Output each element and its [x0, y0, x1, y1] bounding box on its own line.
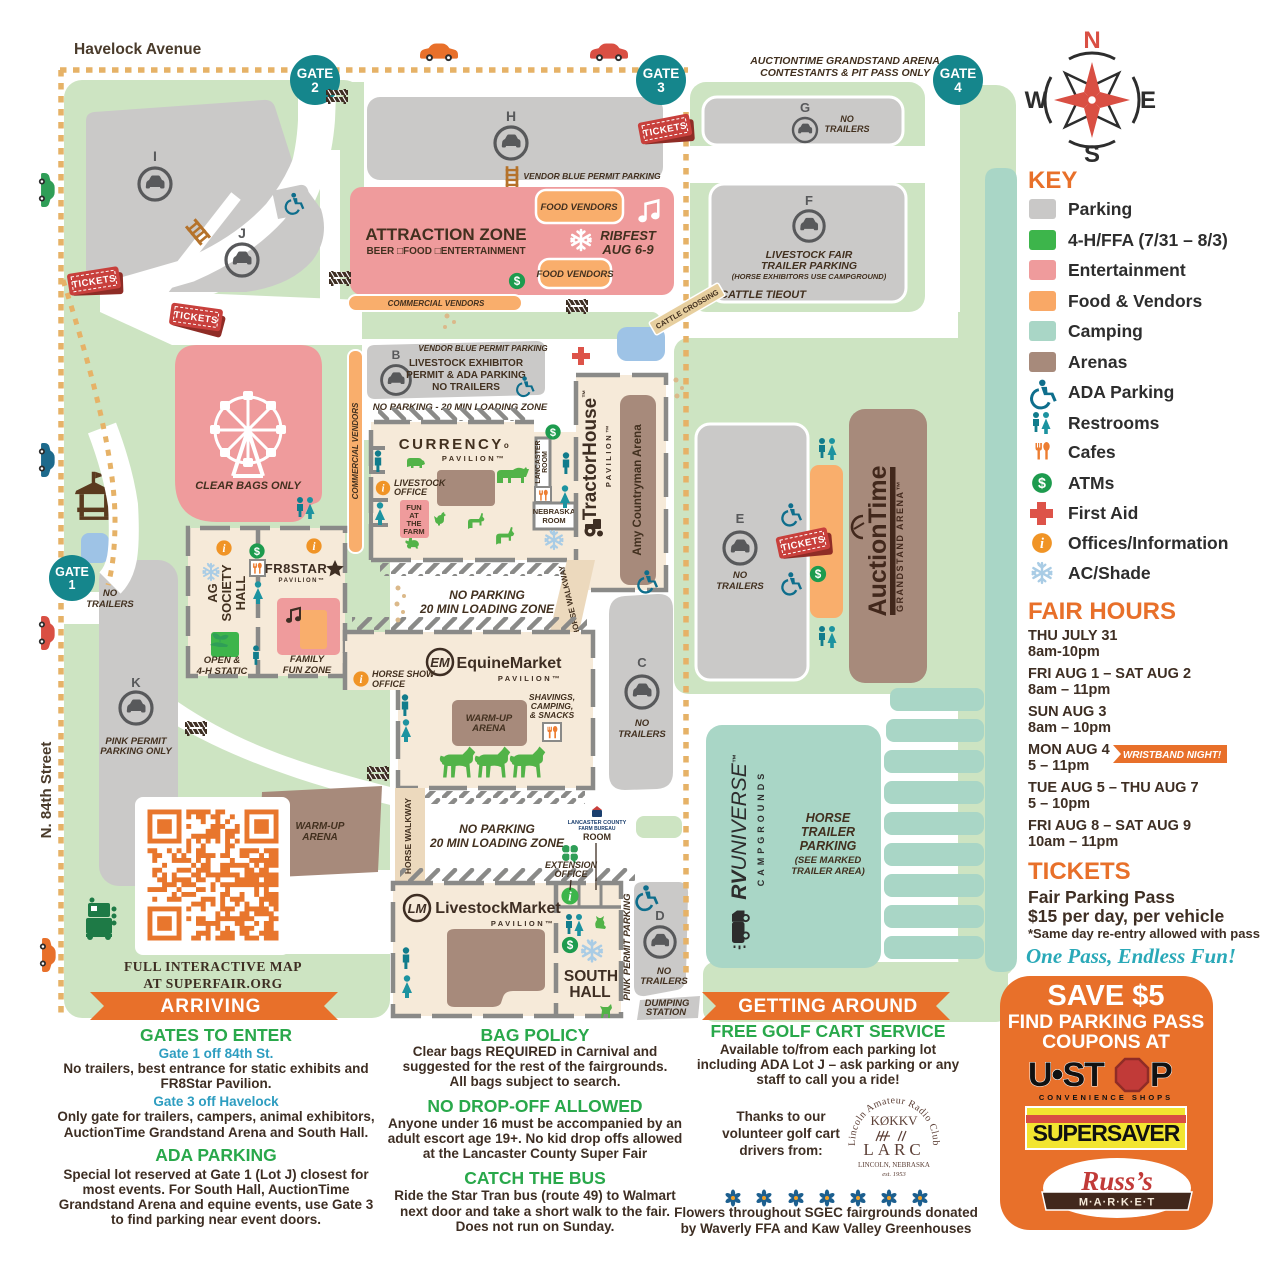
svg-text:Anyone under 16 must be accomp: Anyone under 16 must be accompanied by a… — [388, 1116, 682, 1131]
svg-text:Special lot reserved at Gate 1: Special lot reserved at Gate 1 (Lot J) c… — [63, 1167, 369, 1182]
svg-text:All bags subject to search.: All bags subject to search. — [449, 1074, 620, 1089]
svg-text:BEER □FOOD □ENTERTAINMENT: BEER □FOOD □ENTERTAINMENT — [366, 246, 525, 257]
svg-text:FRI AUG 8 – SAT AUG 9: FRI AUG 8 – SAT AUG 9 — [1028, 818, 1191, 834]
svg-text:5 – 11pm: 5 – 11pm — [1028, 758, 1089, 774]
svg-text:AT SUPERFAIR.ORG: AT SUPERFAIR.ORG — [143, 976, 282, 991]
svg-text:P: P — [1150, 1056, 1173, 1094]
svg-text:most events. For South Hall, A: most events. For South Hall, AuctionTime — [82, 1182, 350, 1197]
svg-text:AUCTIONTIME GRANDSTAND ARENA: AUCTIONTIME GRANDSTAND ARENA — [749, 55, 940, 67]
svg-text:by Waverly FFA and Kaw Valley: by Waverly FFA and Kaw Valley Greenhouse… — [681, 1221, 972, 1236]
svg-text:TICKETS: TICKETS — [1028, 858, 1131, 885]
svg-text:W: W — [1025, 87, 1048, 114]
svg-text:5 – 10pm: 5 – 10pm — [1028, 796, 1090, 812]
svg-text:& SNACKS: & SNACKS — [530, 710, 575, 720]
svg-text:I: I — [153, 148, 157, 164]
svg-text:RIBFEST: RIBFEST — [600, 228, 657, 243]
svg-text:CURRENCYo: CURRENCYo — [399, 436, 511, 453]
svg-text:including ADA Lot J – ask park: including ADA Lot J – ask parking or any — [697, 1057, 960, 1072]
svg-text:NO: NO — [840, 114, 854, 124]
svg-text:KEY: KEY — [1028, 167, 1077, 194]
svg-text:4: 4 — [954, 80, 962, 95]
svg-text:TRAILERS: TRAILERS — [640, 976, 688, 987]
svg-text:VENDOR BLUE PERMIT PARKING: VENDOR BLUE PERMIT PARKING — [523, 171, 661, 181]
svg-text:TRAILERS: TRAILERS — [86, 599, 134, 610]
svg-text:U•ST: U•ST — [1028, 1056, 1105, 1094]
svg-text:FAMILY: FAMILY — [290, 654, 326, 665]
svg-text:GATES TO ENTER: GATES TO ENTER — [140, 1025, 292, 1045]
svg-text:CONVENIENCE SHOPS: CONVENIENCE SHOPS — [1039, 1093, 1173, 1102]
svg-text:ATMs: ATMs — [1068, 473, 1115, 493]
svg-text:NEBRASKA: NEBRASKA — [533, 507, 576, 516]
svg-text:GATE: GATE — [55, 565, 89, 579]
svg-text:10am – 11pm: 10am – 11pm — [1028, 834, 1118, 850]
svg-text:PAVILION™: PAVILION™ — [604, 423, 613, 487]
svg-text:adult escort age 19+. No kid d: adult escort age 19+. No kid drop offs a… — [388, 1131, 682, 1146]
svg-text:TRAILER PARKING: TRAILER PARKING — [761, 260, 857, 272]
svg-text:LANCASTER: LANCASTER — [535, 440, 542, 483]
svg-text:GATE: GATE — [940, 66, 977, 81]
svg-text:Does not run on Sunday.: Does not run on Sunday. — [456, 1219, 615, 1234]
svg-text:AuctionTime: AuctionTime — [864, 465, 892, 616]
svg-text:NO: NO — [635, 718, 650, 729]
svg-text:Available to/from each parking: Available to/from each parking lot — [720, 1042, 937, 1057]
svg-text:VENDOR BLUE PERMIT PARKING: VENDOR BLUE PERMIT PARKING — [418, 344, 547, 353]
svg-text:Amy Countryman Arena: Amy Countryman Arena — [632, 424, 644, 556]
svg-text:D: D — [655, 908, 664, 923]
svg-text:8am – 11pm: 8am – 11pm — [1028, 682, 1110, 698]
svg-text:E: E — [736, 511, 745, 526]
svg-text:FIND PARKING PASS: FIND PARKING PASS — [1008, 1011, 1204, 1033]
svg-text:staff to call you a ride!: staff to call you a ride! — [756, 1072, 899, 1087]
svg-text:CONTESTANTS & PIT PASS ONLY: CONTESTANTS & PIT PASS ONLY — [760, 67, 931, 79]
svg-text:THU JULY 31: THU JULY 31 — [1028, 628, 1117, 644]
svg-text:FR8STAR: FR8STAR — [265, 561, 328, 576]
svg-text:CLEAR BAGS ONLY: CLEAR BAGS ONLY — [195, 480, 302, 492]
svg-text:Cafes: Cafes — [1068, 442, 1116, 462]
svg-text:EquineMarket: EquineMarket — [457, 655, 563, 672]
svg-text:Offices/Information: Offices/Information — [1068, 533, 1228, 553]
svg-text:FRI AUG 1 – SAT AUG 2: FRI AUG 1 – SAT AUG 2 — [1028, 666, 1191, 682]
svg-text:NO PARKING: NO PARKING — [459, 822, 535, 836]
svg-text:(HORSE EXHIBITORS USE CAMPGROU: (HORSE EXHIBITORS USE CAMPGROUND) — [732, 272, 887, 281]
svg-text:ROOM: ROOM — [583, 832, 611, 842]
svg-text:CATCH THE BUS: CATCH THE BUS — [464, 1168, 606, 1188]
svg-text:One Pass, Endless Fun!: One Pass, Endless Fun! — [1026, 944, 1236, 968]
svg-text:8am – 10pm: 8am – 10pm — [1028, 720, 1111, 736]
svg-text:Only gate for trailers, camper: Only gate for trailers, campers, animal … — [57, 1109, 374, 1124]
svg-text:PARKING ONLY: PARKING ONLY — [100, 746, 173, 757]
svg-text:FARM: FARM — [403, 527, 424, 536]
svg-text:Arenas: Arenas — [1068, 352, 1128, 372]
svg-text:HORSE SHOW: HORSE SHOW — [372, 669, 436, 679]
svg-text:LivestockMarket: LivestockMarket — [435, 900, 561, 917]
svg-text:ARRIVING: ARRIVING — [161, 996, 262, 1017]
svg-text:FULL INTERACTIVE MAP: FULL INTERACTIVE MAP — [124, 959, 302, 974]
svg-text:at the Lancaster County Super: at the Lancaster County Super Fair — [423, 1146, 648, 1161]
svg-text:PERMIT & ADA PARKING: PERMIT & ADA PARKING — [406, 370, 526, 381]
svg-text:First Aid: First Aid — [1068, 503, 1138, 523]
svg-text:LIVESTOCK EXHIBITOR: LIVESTOCK EXHIBITOR — [409, 358, 524, 369]
svg-text:SUPERSAVER: SUPERSAVER — [1033, 1120, 1181, 1146]
svg-text:LARC: LARC — [863, 1140, 924, 1159]
svg-text:OFFICE: OFFICE — [555, 869, 589, 879]
svg-text:WARM-UP: WARM-UP — [296, 821, 345, 832]
svg-text:SOUTH: SOUTH — [564, 968, 618, 985]
svg-text:ADA Parking: ADA Parking — [1068, 382, 1174, 402]
svg-text:GATE: GATE — [643, 66, 680, 81]
svg-text:HALL: HALL — [233, 576, 248, 611]
svg-text:PAVILION™: PAVILION™ — [442, 454, 506, 463]
svg-text:Camping: Camping — [1068, 321, 1143, 341]
svg-text:OFFICE: OFFICE — [372, 679, 406, 689]
svg-text:COUPONS AT: COUPONS AT — [1042, 1031, 1170, 1053]
svg-text:J: J — [238, 225, 246, 241]
svg-text:M·A·R·K·E·T: M·A·R·K·E·T — [1079, 1197, 1155, 1209]
svg-text:B: B — [392, 348, 401, 362]
svg-text:RVUNIVERSE™: RVUNIVERSE™ — [728, 754, 751, 900]
svg-text:to find parking near event doo: to find parking near event doors. — [111, 1212, 321, 1227]
svg-text:No trailers, best entrance for: No trailers, best entrance for static ex… — [63, 1061, 368, 1076]
svg-text:TRAILERS: TRAILERS — [825, 124, 870, 134]
svg-text:volunteer golf cart: volunteer golf cart — [722, 1126, 840, 1141]
svg-text:EM: EM — [430, 655, 451, 670]
svg-text:FOOD VENDORS: FOOD VENDORS — [540, 202, 618, 213]
svg-text:Ride the Star Tran bus (route: Ride the Star Tran bus (route 49) to Wal… — [394, 1188, 676, 1203]
svg-text:GETTING AROUND: GETTING AROUND — [738, 996, 917, 1017]
svg-text:Clear bags REQUIRED in Carniva: Clear bags REQUIRED in Carnival and — [413, 1044, 658, 1059]
svg-text:4-H/FFA (7/31 – 8/3): 4-H/FFA (7/31 – 8/3) — [1068, 230, 1228, 250]
svg-text:TRAILERS: TRAILERS — [618, 729, 666, 740]
svg-text:Grandstand Arena and equine ev: Grandstand Arena and equine events, use … — [59, 1197, 374, 1212]
svg-text:ARENA: ARENA — [471, 723, 506, 734]
svg-text:Fair Parking Pass: Fair Parking Pass — [1028, 887, 1175, 907]
svg-text:N: N — [1083, 27, 1100, 54]
svg-text:2: 2 — [311, 80, 319, 95]
svg-text:HORSE WALKWAY: HORSE WALKWAY — [403, 798, 413, 875]
svg-text:Entertainment: Entertainment — [1068, 260, 1186, 280]
svg-text:LINCOLN, NEBRASKA: LINCOLN, NEBRASKA — [858, 1161, 930, 1169]
svg-text:F: F — [805, 193, 813, 208]
svg-text:TRAILERS: TRAILERS — [716, 581, 764, 592]
svg-text:NO: NO — [103, 588, 118, 599]
svg-text:*Same day re-entry allowed wit: *Same day re-entry allowed with pass — [1028, 926, 1260, 941]
svg-text:GATE: GATE — [297, 66, 334, 81]
svg-text:PARKING: PARKING — [800, 839, 857, 853]
svg-text:G: G — [800, 100, 810, 115]
svg-text:AC/Shade: AC/Shade — [1068, 563, 1151, 583]
svg-text:1: 1 — [69, 578, 76, 592]
svg-text:LM: LM — [408, 901, 428, 916]
svg-text:AUG 6-9: AUG 6-9 — [601, 242, 654, 257]
svg-text:STATION: STATION — [646, 1007, 687, 1018]
svg-text:4-H STATIC: 4-H STATIC — [196, 666, 248, 677]
svg-text:Thanks to our: Thanks to our — [736, 1109, 826, 1124]
svg-text:drivers from:: drivers from: — [739, 1143, 822, 1158]
svg-text:FR8Star Pavilion.: FR8Star Pavilion. — [160, 1076, 271, 1091]
svg-text:Parking: Parking — [1068, 199, 1132, 219]
svg-text:Restrooms: Restrooms — [1068, 413, 1160, 433]
svg-text:20 MIN LOADING ZONE: 20 MIN LOADING ZONE — [429, 836, 565, 850]
svg-text:CATTLE TIEOUT: CATTLE TIEOUT — [720, 289, 807, 301]
svg-text:Flowers throughout SGEC fairgr: Flowers throughout SGEC fairgrounds dona… — [674, 1205, 978, 1220]
svg-text:FUN ZONE: FUN ZONE — [283, 665, 332, 676]
svg-text:ATTRACTION ZONE: ATTRACTION ZONE — [365, 225, 526, 244]
svg-text:Havelock Avenue: Havelock Avenue — [74, 41, 202, 58]
svg-text:(SEE MARKED: (SEE MARKED — [795, 855, 862, 866]
svg-text:TRAILER: TRAILER — [801, 825, 855, 839]
svg-text:NO PARKING: NO PARKING — [449, 588, 525, 602]
svg-text:est. 1953: est. 1953 — [882, 1171, 906, 1178]
svg-text:Food & Vendors: Food & Vendors — [1068, 291, 1202, 311]
svg-text:FREE GOLF CART SERVICE: FREE GOLF CART SERVICE — [711, 1021, 946, 1041]
svg-text:C: C — [637, 655, 647, 670]
svg-text:PAVILION™: PAVILION™ — [498, 674, 562, 683]
svg-text:KØKKV: KØKKV — [871, 1113, 919, 1128]
svg-text:ARENA: ARENA — [301, 832, 338, 843]
svg-text:Gate 1 off 84th St.: Gate 1 off 84th St. — [159, 1046, 274, 1061]
svg-text:FOOD VENDORS: FOOD VENDORS — [536, 269, 614, 280]
svg-text:COMMERCIAL VENDORS: COMMERCIAL VENDORS — [388, 299, 485, 308]
svg-text:OPEN &: OPEN & — [204, 655, 241, 666]
svg-text:S: S — [1084, 141, 1100, 168]
svg-text:SUN AUG 3: SUN AUG 3 — [1028, 704, 1106, 720]
svg-text:SOCIETY: SOCIETY — [219, 564, 234, 621]
svg-text:NO TRAILERS: NO TRAILERS — [432, 382, 500, 393]
svg-text:BAG POLICY: BAG POLICY — [481, 1025, 590, 1045]
svg-text:HORSE: HORSE — [806, 811, 851, 825]
svg-text:COMMERCIAL VENDORS: COMMERCIAL VENDORS — [351, 402, 360, 499]
svg-text:TUE AUG 5 – THU AUG 7: TUE AUG 5 – THU AUG 7 — [1028, 780, 1199, 796]
svg-text:ROOM: ROOM — [542, 516, 565, 525]
svg-text:K: K — [131, 675, 141, 690]
svg-text:$15 per day, per vehicle: $15 per day, per vehicle — [1028, 906, 1224, 926]
svg-text:TRAILER AREA): TRAILER AREA) — [791, 866, 865, 877]
svg-text:GRANDSTAND ARENA™: GRANDSTAND ARENA™ — [895, 480, 905, 612]
svg-text:ADA PARKING: ADA PARKING — [155, 1145, 277, 1165]
svg-text:suggested for the rest of the: suggested for the rest of the fairground… — [403, 1059, 668, 1074]
svg-text:PINK PERMIT PARKING: PINK PERMIT PARKING — [622, 893, 633, 1001]
svg-text:next door and take a short wal: next door and take a short walk to the f… — [400, 1204, 670, 1219]
svg-text:N. 84th Street: N. 84th Street — [38, 742, 55, 839]
svg-text:AuctionTime Grandstand Arena a: AuctionTime Grandstand Arena and South H… — [64, 1125, 369, 1140]
svg-text:PAVILION™: PAVILION™ — [279, 577, 326, 584]
svg-text:20 MIN LOADING ZONE: 20 MIN LOADING ZONE — [419, 602, 555, 616]
svg-text:PAVILION™: PAVILION™ — [491, 919, 555, 928]
svg-text:FAIR HOURS: FAIR HOURS — [1028, 598, 1176, 625]
svg-text:SAVE $5: SAVE $5 — [1047, 980, 1164, 1012]
svg-text:Gate 3 off Havelock: Gate 3 off Havelock — [153, 1094, 279, 1109]
svg-text:E: E — [1140, 87, 1156, 114]
svg-text:ROOM: ROOM — [542, 451, 549, 473]
svg-text:CAMPGROUNDS: CAMPGROUNDS — [756, 770, 766, 887]
svg-text:H: H — [506, 108, 516, 124]
svg-text:8am-10pm: 8am-10pm — [1028, 644, 1100, 660]
svg-text:NO: NO — [733, 570, 748, 581]
svg-text:OFFICE: OFFICE — [394, 487, 428, 497]
svg-text:MON AUG 4: MON AUG 4 — [1028, 742, 1110, 758]
svg-text:WRISTBAND NIGHT!: WRISTBAND NIGHT! — [1123, 750, 1222, 761]
svg-text:HALL: HALL — [569, 984, 610, 1001]
svg-text:3: 3 — [657, 80, 665, 95]
svg-text:TractorHouse™: TractorHouse™ — [580, 390, 601, 520]
svg-text:AG: AG — [205, 583, 220, 603]
svg-text:NO DROP-OFF ALLOWED: NO DROP-OFF ALLOWED — [427, 1096, 642, 1116]
